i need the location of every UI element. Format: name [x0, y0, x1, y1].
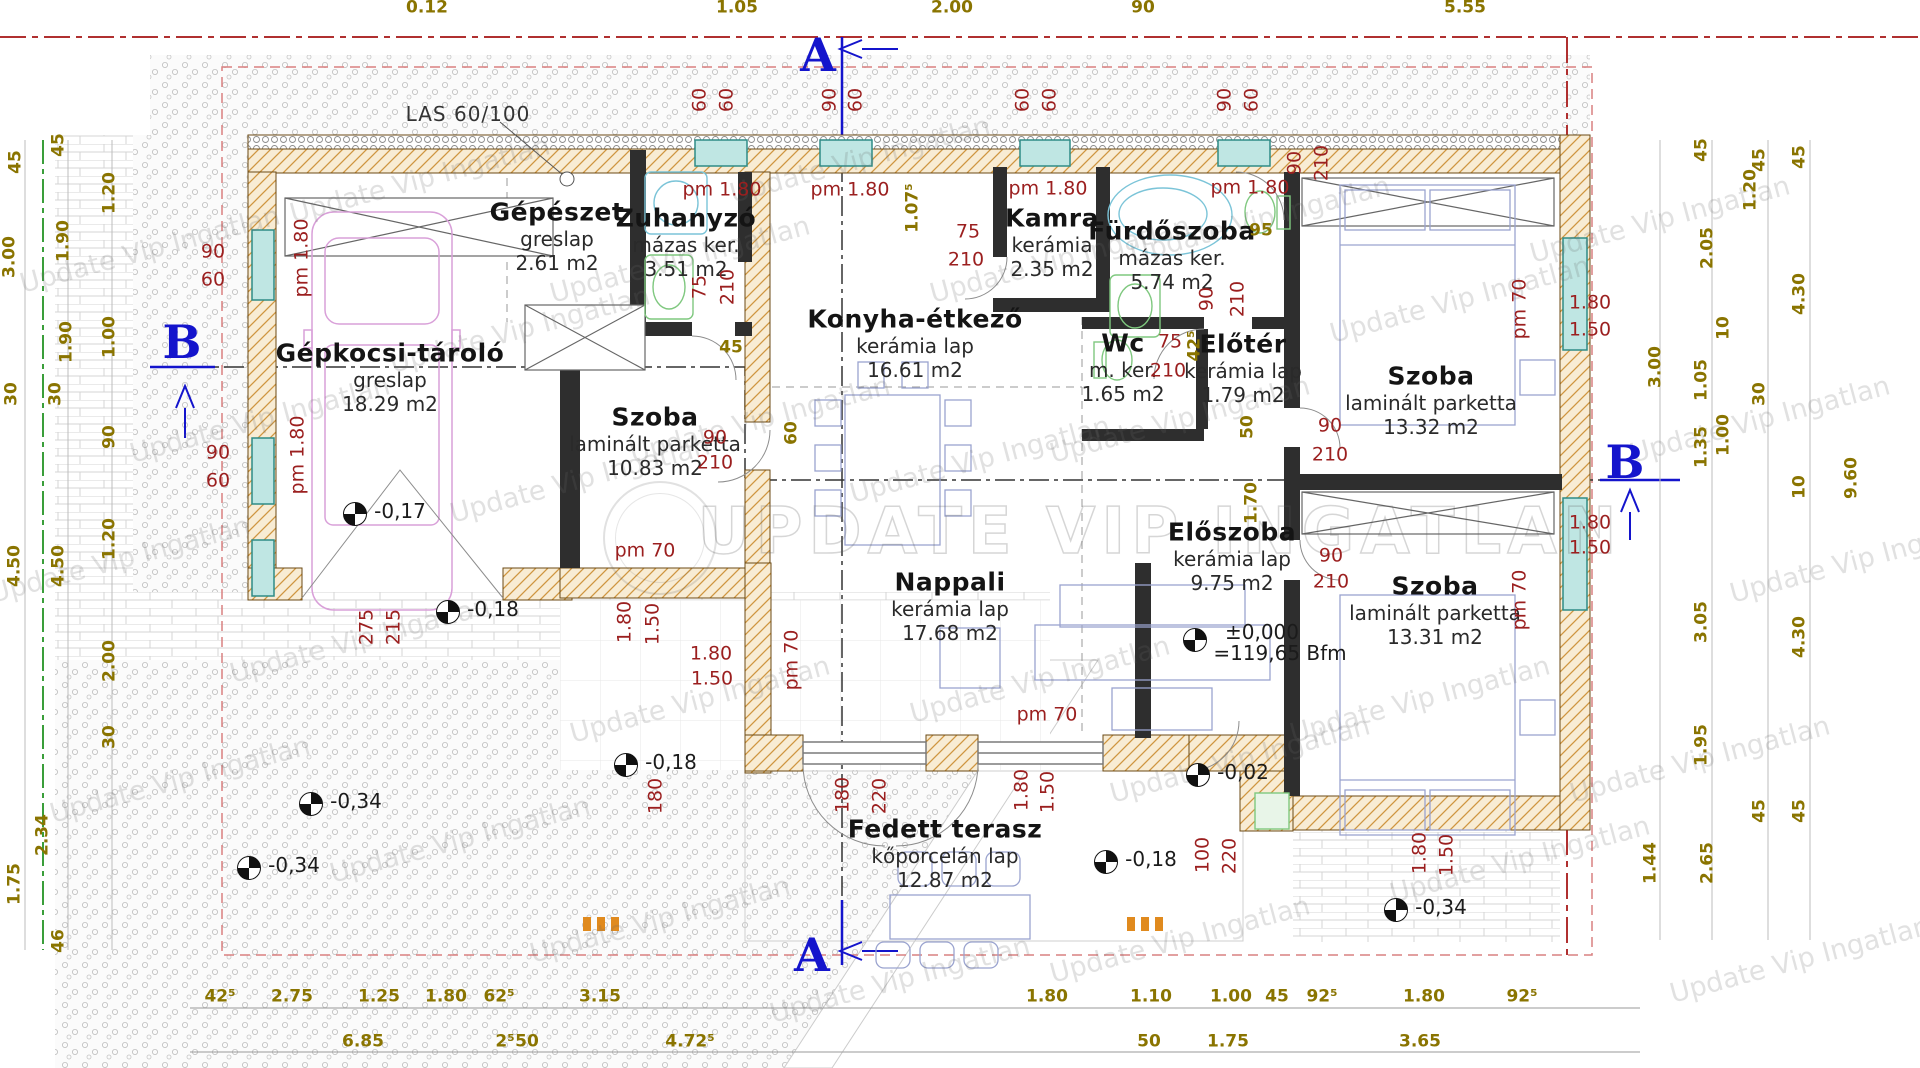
- room-label-floor: kerámia lap: [1184, 361, 1302, 381]
- room-label-floor: laminált parketta: [1349, 603, 1521, 623]
- dim-chain-left: 3.00: [2, 236, 19, 278]
- dim-chain-bottom-1: 62⁵: [483, 989, 514, 1006]
- room-label-area: 1.65 m2: [1081, 384, 1164, 404]
- dim-chain-bottom-1: 92⁵: [1506, 989, 1537, 1006]
- dim-label-red: 1.80: [1013, 769, 1032, 811]
- dim-chain-right: 1.00: [1716, 414, 1733, 456]
- dim-label-red: 210: [1313, 573, 1349, 592]
- dim-chain-bottom-1: 45: [1265, 989, 1289, 1006]
- dim-chain-top: 5.55: [1444, 0, 1486, 17]
- room-label-name: Előtér: [1199, 332, 1286, 357]
- dim-label-red: 100: [1194, 837, 1213, 873]
- room-label-name: Nappali: [894, 570, 1005, 595]
- dim-label-red: 210: [1229, 281, 1248, 317]
- floor-plan-canvas: Update Vip IngatlanUpdate Vip IngatlanUp…: [0, 0, 1920, 1068]
- dim-label-red: 90: [1318, 417, 1342, 436]
- dim-label-red: 1.80: [690, 645, 732, 664]
- dim-label-red: pm 70: [1511, 570, 1530, 631]
- elevation-value: -0,18: [1125, 849, 1177, 869]
- dim-label-red: 220: [871, 778, 890, 814]
- elevation-value: -0,18: [467, 599, 519, 619]
- dim-chain-right: 4.30: [1792, 616, 1809, 658]
- dim-label-red: 180: [834, 777, 853, 813]
- dim-label-red: 1.80: [616, 601, 635, 643]
- room-label-name: Zuhanyzó: [616, 206, 756, 231]
- dim-chain-left: 1.20: [102, 518, 119, 560]
- room-label-name: Előszoba: [1168, 520, 1296, 545]
- room-label-name: Kamra: [1005, 206, 1099, 231]
- dim-label-red: pm 1.80: [811, 181, 890, 200]
- room-label-floor: mázas ker.: [1118, 248, 1225, 268]
- section-a-top: A: [800, 32, 836, 78]
- room-label-area: 17.68 m2: [902, 623, 998, 643]
- room-label-floor: kerámia lap: [891, 599, 1009, 619]
- elevation-marker-icon: [1094, 850, 1118, 874]
- elevation-marker-icon: [1384, 898, 1408, 922]
- dim-chain-bottom-2: 50: [1137, 1034, 1161, 1051]
- dim-chain-right: 10: [1716, 316, 1733, 340]
- dim-chain-top: 1.05: [716, 0, 758, 17]
- dim-label-red: 90: [1198, 287, 1217, 311]
- dim-chain-right: 45: [1752, 799, 1769, 823]
- dim-label-red: 90: [1286, 151, 1305, 175]
- dim-chain-right: 1.44: [1643, 842, 1660, 884]
- dim-chain-left: 2.34: [35, 814, 52, 856]
- elevation-marker-icon: [237, 856, 261, 880]
- room-label-name: Fedett terasz: [848, 817, 1043, 842]
- dim-chain-left: 45: [8, 150, 25, 174]
- dim-label-red: pm 70: [1511, 279, 1530, 340]
- room-label-name: Gépkocsi-tároló: [276, 341, 505, 366]
- room-label-floor: kerámia lap: [1173, 549, 1291, 569]
- watermark-big: UPDATE VIP INGATLAN: [698, 495, 1623, 569]
- dim-chain-bottom-2: 50: [515, 1034, 539, 1051]
- dim-label-red: 90: [703, 429, 727, 448]
- dim-chain-right: 1.95: [1694, 724, 1711, 766]
- dim-label-red: 1.50: [1039, 771, 1058, 813]
- dim-chain-bottom-1: 3.15: [579, 989, 621, 1006]
- room-label-area: 10.83 m2: [607, 458, 703, 478]
- dim-label-red: 90: [821, 88, 840, 112]
- dim-chain-left: 30: [4, 382, 21, 406]
- dim-label-red: 1.50: [1438, 834, 1457, 876]
- dim-chain-left: 2.00: [102, 640, 119, 682]
- section-b-left: B: [163, 319, 202, 365]
- elevation-marker-icon: [299, 792, 323, 816]
- dim-label-red: pm 1.80: [1009, 180, 1088, 199]
- dim-label-red: 275: [358, 609, 377, 645]
- dim-chain-left: 30: [48, 382, 65, 406]
- dim-chain-right: 1.20: [1743, 169, 1760, 211]
- dim-label-red: 210: [1312, 446, 1348, 465]
- dim-label-yellow: 95: [1249, 223, 1273, 240]
- elevation-value: -0,02: [1217, 762, 1269, 782]
- dim-label-red: 90: [1216, 88, 1235, 112]
- dim-chain-top: 90: [1131, 0, 1155, 17]
- dim-label-red: 60: [691, 88, 710, 112]
- dim-label-red: 1.80: [1411, 832, 1430, 874]
- dim-label-red: 220: [1221, 838, 1240, 874]
- room-label-area: 18.29 m2: [342, 394, 438, 414]
- dim-chain-bottom-1: 1.80: [1026, 989, 1068, 1006]
- dim-chain-bottom-1: 1.80: [425, 989, 467, 1006]
- dim-label-red: pm 70: [1017, 706, 1078, 725]
- room-label-area: 9.75 m2: [1190, 573, 1273, 593]
- dim-label-red: 180: [647, 778, 666, 814]
- dim-label-red: 60: [1243, 88, 1262, 112]
- dim-label-red: 75: [1158, 333, 1182, 352]
- room-label-name: Konyha-étkező: [807, 307, 1022, 332]
- dim-label-red: 90: [201, 243, 225, 262]
- dim-chain-bottom-2: 6.85: [342, 1034, 384, 1051]
- dim-chain-right: 45: [1694, 138, 1711, 162]
- dim-label-red: 60: [847, 88, 866, 112]
- room-label-area: 12.87 m2: [897, 870, 993, 890]
- room-label-area: 2.61 m2: [515, 253, 598, 273]
- dim-label-yellow: 1.07⁵: [905, 183, 922, 232]
- dim-chain-right: 1.05: [1694, 359, 1711, 401]
- dim-chain-right: 45: [1792, 145, 1809, 169]
- dim-chain-left: 46: [51, 929, 68, 953]
- dim-label-red: 60: [718, 88, 737, 112]
- elevation-value: -0,34: [1415, 897, 1467, 917]
- watermark-logo: [603, 481, 717, 595]
- dim-label-red: 60: [1041, 88, 1060, 112]
- dim-chain-bottom-1: 2.75: [271, 989, 313, 1006]
- dim-chain-left: 1.20: [102, 172, 119, 214]
- dim-label-red: 1.50: [1569, 321, 1611, 340]
- section-a-bottom: A: [794, 932, 830, 978]
- elevation-value: -0,18: [645, 752, 697, 772]
- dim-label-red: 60: [1014, 88, 1033, 112]
- dim-label-red: 60: [206, 472, 230, 491]
- dim-label-yellow: 1.70: [1244, 482, 1261, 524]
- dim-label-red: 75: [691, 275, 710, 299]
- dim-label-red: 1.50: [644, 603, 663, 645]
- dim-label-red: 90: [206, 444, 230, 463]
- room-label-floor: greslap: [520, 229, 594, 249]
- room-label-name: Szoba: [1388, 364, 1475, 389]
- elevation-marker-icon: [1183, 628, 1207, 652]
- zero-level-value: ±0,000: [1225, 622, 1299, 642]
- dim-chain-right: 9.60: [1844, 457, 1861, 499]
- dim-label-red: 210: [1150, 362, 1186, 381]
- dim-label-red: pm 1.80: [289, 416, 308, 495]
- label-layer: LAS 60/100 A A B B UPDATE VIP INGATLAN G…: [0, 0, 1920, 1068]
- dim-chain-bottom-1: 1.25: [358, 989, 400, 1006]
- dim-chain-right: 2.05: [1700, 227, 1717, 269]
- dim-label-red: 210: [1313, 145, 1332, 181]
- dim-chain-right: 45: [1792, 799, 1809, 823]
- zero-level-datum: =119,65 Bfm: [1213, 643, 1346, 663]
- dim-label-red: pm 1.80: [683, 181, 762, 200]
- elevation-marker-icon: [343, 502, 367, 526]
- room-label-floor: greslap: [353, 370, 427, 390]
- dim-chain-bottom-1: 1.80: [1403, 989, 1445, 1006]
- dim-chain-top: 2.00: [931, 0, 973, 17]
- dim-label-red: 1.80: [1569, 514, 1611, 533]
- dim-label-red: pm 1.80: [293, 219, 312, 298]
- dim-chain-right: 3.05: [1694, 601, 1711, 643]
- room-label-floor: laminált parketta: [1345, 393, 1517, 413]
- elevation-value: -0,34: [330, 791, 382, 811]
- dim-chain-left: 1.00: [102, 316, 119, 358]
- dim-chain-right: 1.35: [1694, 426, 1711, 468]
- room-label-area: 2.35 m2: [1010, 259, 1093, 279]
- dim-label-red: 215: [385, 609, 404, 645]
- dim-label-red: 90: [1319, 547, 1343, 566]
- dim-chain-bottom-2: 1.75: [1207, 1034, 1249, 1051]
- elevation-value: -0,17: [374, 501, 426, 521]
- beam-note: LAS 60/100: [406, 104, 531, 124]
- room-label-area: 16.61 m2: [867, 360, 963, 380]
- dim-label-red: 210: [697, 454, 733, 473]
- dim-chain-bottom-2: 2⁵: [495, 1034, 514, 1051]
- dim-label-red: 1.50: [1569, 539, 1611, 558]
- dim-chain-bottom-1: 42⁵: [204, 989, 235, 1006]
- dim-chain-left: 4.50: [51, 545, 68, 587]
- room-label-floor: kőporcelán lap: [871, 846, 1018, 866]
- dim-chain-bottom-1: 92⁵: [1306, 989, 1337, 1006]
- section-b-right: B: [1606, 439, 1645, 485]
- dim-chain-right: 2.65: [1700, 842, 1717, 884]
- dim-chain-left: 45: [51, 133, 68, 157]
- room-label-floor: kerámia lap: [856, 336, 974, 356]
- dim-chain-left: 30: [102, 725, 119, 749]
- dim-chain-top: 0.12: [406, 0, 448, 17]
- dim-label-red: 210: [719, 269, 738, 305]
- dim-chain-bottom-1: 1.00: [1210, 989, 1252, 1006]
- dim-chain-bottom-2: 3.65: [1399, 1034, 1441, 1051]
- dim-label-red: 1.80: [1569, 294, 1611, 313]
- dim-chain-left: 1.75: [7, 863, 24, 905]
- dim-label-red: 75: [956, 223, 980, 242]
- dim-chain-bottom-2: 4.72⁵: [665, 1034, 714, 1051]
- room-label-name: Fürdőszoba: [1088, 219, 1255, 244]
- dim-chain-bottom-1: 1.10: [1130, 989, 1172, 1006]
- room-label-floor: mázas ker.: [632, 235, 739, 255]
- dim-label-red: pm 1.80: [1211, 179, 1290, 198]
- dim-label-red: 1.50: [691, 670, 733, 689]
- room-label-area: 13.32 m2: [1383, 417, 1479, 437]
- dim-chain-right: 3.00: [1648, 346, 1665, 388]
- room-label-name: Wc: [1101, 331, 1144, 356]
- room-label-area: 3.51 m2: [644, 259, 727, 279]
- dim-chain-left: 1.90: [56, 220, 73, 262]
- dim-chain-left: 90: [102, 425, 119, 449]
- room-label-floor: m. ker.: [1089, 360, 1157, 380]
- dim-label-yellow: 60: [784, 421, 801, 445]
- dim-chain-left: 1.90: [59, 321, 76, 363]
- dim-chain-right: 30: [1752, 382, 1769, 406]
- room-label-floor: kerámia: [1012, 235, 1093, 255]
- room-label-area: 13.31 m2: [1387, 627, 1483, 647]
- room-label-area: 1.79 m2: [1201, 385, 1284, 405]
- room-label-name: Szoba: [612, 405, 699, 430]
- dim-label-red: 60: [201, 271, 225, 290]
- elevation-marker-icon: [614, 753, 638, 777]
- room-label-name: Szoba: [1392, 574, 1479, 599]
- dim-label-red: pm 70: [615, 542, 676, 561]
- dim-chain-right: 4.30: [1792, 273, 1809, 315]
- dim-label-yellow: 45: [719, 340, 743, 357]
- dim-chain-right: 10: [1792, 475, 1809, 499]
- dim-label-red: 210: [948, 251, 984, 270]
- dim-label-yellow: 50: [1240, 415, 1257, 439]
- dim-chain-left: 4.50: [7, 545, 24, 587]
- dim-label-red: pm 70: [783, 630, 802, 691]
- elevation-value: -0,34: [268, 855, 320, 875]
- dim-label-yellow: 42⁵: [1187, 330, 1204, 361]
- room-label-name: Gépészet: [490, 200, 625, 225]
- elevation-marker-icon: [436, 600, 460, 624]
- elevation-marker-icon: [1186, 763, 1210, 787]
